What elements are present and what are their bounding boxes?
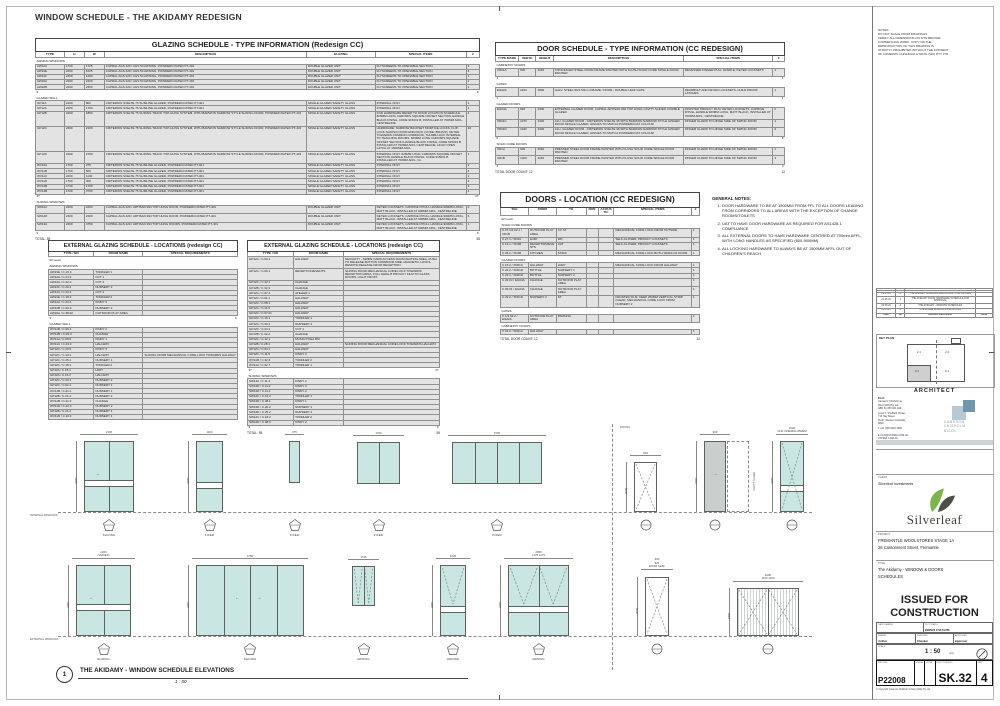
doors-section-divider (612, 548, 613, 670)
table-title: DOORS - LOCATION (CC REDESIGN) (501, 193, 700, 208)
door-elevation (780, 441, 804, 512)
view-title-underline (78, 678, 468, 679)
elevation-caption: FIXED (472, 533, 522, 537)
drawn-label: DRAWN (878, 635, 886, 637)
dimension-label: 1100 (192, 431, 227, 435)
elevation-caption: SLIDING (79, 657, 129, 661)
drawing-number-box: PROJ No. P22008 STAGE ZONE DISC / DWG No… (876, 660, 993, 686)
section-label: CABINETRY DOORS (501, 323, 700, 330)
window-tag-icon (98, 642, 110, 654)
table-row: C.07.1/2.02.1 / XD1BOUTDOOR PLAY AREACC … (501, 229, 700, 238)
awning-window-elevation (508, 565, 569, 636)
silverleaf-wordmark: Silverleaf (876, 512, 993, 528)
elevation-caption: FIXED (354, 533, 404, 537)
table-row: C.09.01 / EG04ACHANGEOUTDOOR PLAY AREA1 (501, 287, 700, 296)
scale-row: SCALE 1 : 50 (A1) (876, 644, 993, 660)
page-title: WINDOW SCHEDULE - THE AKIDAMY REDESIGN (35, 12, 242, 22)
scale-label: SCALE (878, 646, 885, 648)
cavity-pocket-outline (727, 441, 749, 512)
external-glazing-locations-right-table: EXTERNAL GLAZING SCHEDULE - LOCATIONS (r… (247, 240, 440, 435)
key-plan: KEY PLAN 2.1 2.3 2.2 2.4 (876, 334, 995, 388)
dimension-label: 2400 (186, 601, 190, 607)
zone-label: ZONE (926, 662, 932, 664)
view-title: THE AKIDAMY - WINDOW SCHEDULE ELEVATIONS (80, 667, 234, 674)
setout-baseline (58, 636, 812, 637)
view-number-badge: 1 (56, 666, 73, 683)
dwg-no-label: DISC / DWG No. (937, 662, 953, 664)
divider-line (876, 474, 993, 475)
plot-date-value: 29/05/24 4:52:51 PM (925, 629, 949, 632)
edge-tick (6, 352, 11, 353)
table-title: DOOR SCHEDULE - TYPE INFORMATION (CC RED… (496, 43, 785, 56)
proj-no-label: PROJ No. (878, 662, 888, 664)
checked-value: Checker (917, 639, 928, 643)
architect-firm: Cameron Chisholm & Nicol (WA) Pty Ltd AB… (878, 400, 940, 410)
door-elevation (634, 462, 657, 512)
table-row: GP12B24001850CRITERION SVELTE 75 SLIDING… (36, 111, 480, 126)
general-notes-title: GENERAL NOTES: (712, 196, 864, 201)
general-notes: GENERAL NOTES: DOOR HARDWARE TO BE AT 15… (712, 196, 864, 258)
door-tag-icon (786, 518, 798, 530)
approved-value: Approver (955, 639, 967, 643)
window-tag-icon (491, 518, 503, 530)
dimension-line (76, 441, 77, 512)
table-row: GP12D24002700CRITERION SVELTE 75 SLIDING… (36, 152, 480, 164)
key-plan-zone-label: 2.3 (945, 350, 949, 354)
dimension-label: 2400 (66, 601, 70, 607)
door-schedule-table: DOOR SCHEDULE - TYPE INFORMATION (CC RED… (495, 42, 785, 174)
client-label: CLIENT (878, 476, 887, 479)
scale-value: 1 : 50 (925, 649, 940, 655)
awning-window-elevation (440, 565, 466, 636)
window-tag-icon (289, 518, 301, 530)
copyright-note: © Copyright Cameron Chisholm & Nicol (WA… (876, 689, 993, 691)
sliding-window-elevation: → (84, 441, 134, 512)
dimension-label: 1025 (436, 555, 470, 559)
drawn-value: Author (878, 639, 887, 643)
table-row: XD01D10202400ALU. GLAZED DOOR - CRITERIO… (496, 128, 785, 137)
table-row: XD1B10002040PRESSED STEEL DOOR FRAME PAI… (496, 156, 785, 165)
sliding-window-elevation: → (76, 565, 131, 636)
drawn-row: DRAWN Author CHECKED Checker APPROVED Ap… (876, 633, 993, 644)
section-label: AWNING WINDOWS (36, 57, 480, 64)
fixed-window-elevation (452, 442, 542, 484)
key-plan-notch (951, 338, 961, 344)
architect-heading: ARCHITECT (876, 388, 993, 394)
dimension-label: 22001100 1100 (733, 574, 803, 582)
table-header: TAGFROMTOFIREACOUSTICSPECIAL ITEMS# (501, 207, 700, 216)
window-tag-icon (447, 642, 459, 654)
general-note-item: DOOR HARDWARE TO BE AT 1500MM FROM FFL T… (722, 203, 864, 218)
general-note-item: ALL EXTERNAL DOORS TO HAVE HARDWARE CENT… (722, 233, 864, 243)
cavity-slider-label: CAVITY SLIDER (753, 471, 756, 490)
project-label: PROJECT (878, 533, 890, 536)
dimension-line (696, 441, 697, 512)
fixed-window-elevation (196, 441, 223, 512)
dimension-label: 2200(VARIES) (72, 551, 135, 559)
window-tag-icon (204, 518, 216, 530)
edge-tick (499, 695, 500, 700)
table-row: C.20.2 / XD01DNURSERY 2STFROSTED FILM, K… (501, 295, 700, 307)
setout-baseline (58, 512, 812, 513)
title-label: TITLE (878, 562, 885, 565)
status-stamp: ISSUED FOR CONSTRUCTION (876, 594, 993, 619)
window-tag-icon (103, 518, 115, 530)
dimension-label: 2040 (635, 607, 639, 613)
dimension-line (772, 441, 773, 512)
dimension-line (68, 565, 69, 636)
internal-windows-label: INTERNAL WINDOWS (30, 514, 58, 517)
table-row: C.03.2 / XD01AHALLWAY1 (501, 329, 700, 334)
doors-location-table: DOORS - LOCATION (CC REDESIGN)TAGFROMTOF… (500, 192, 700, 341)
revision-header: DateNoRevision DescriptionIssue (877, 313, 993, 318)
door-tag-icon (709, 518, 721, 530)
dimension-line (637, 577, 638, 636)
dimension-label: 2040 (624, 488, 628, 494)
architect-address: Level 3, Sheffield House 713 Hay Street … (878, 412, 940, 425)
date-drawn-label: DATE DRAWN (878, 624, 892, 626)
dimension-label: 2400 (186, 477, 190, 483)
door-elevation (737, 588, 799, 636)
window-tag-icon (533, 642, 545, 654)
titleblock-divider (872, 6, 873, 700)
dimension-line (500, 565, 501, 636)
table-row: EG02A22001800GALV. STEEL SHS 50mm FRAME … (496, 88, 785, 97)
table-row: EG04A9202400EXTERNAL GLAZED DOOR, CAPRAL… (496, 107, 785, 119)
rev-label: REV (978, 662, 983, 664)
external-windows-label: EXTERNAL WINDOWS (30, 638, 58, 641)
dimension-label: 4750 (192, 555, 308, 559)
table-row: C.32.03 / EG04ACHANGEOUTDOOR PLAY AREA1 (501, 278, 700, 287)
dimension-line (188, 441, 189, 512)
dwg-no-value: SK.32 (939, 671, 972, 685)
table-row: SW12C24002200CAPRAL AGS 429 / ARTISAN 99… (36, 205, 480, 214)
table-row: GP12C24002100CRITERION SVELTE 75 SLIDING… (36, 126, 480, 151)
architect-contact: T +61 (0)8 9322 1566 E CCN@CCNWA.COM.AU … (878, 427, 940, 440)
awning-window-elevation (352, 566, 375, 606)
table-row: WV11D / C.22.4NURSERY 1 (49, 414, 238, 419)
divider-line (876, 449, 993, 450)
elevation-caption: SLIDING (84, 533, 134, 537)
dimension-label: 900 (630, 452, 661, 456)
proj-no-value: P22008 (878, 676, 906, 685)
plot-date-label: PLOT DATE: (925, 624, 938, 626)
dimension-label: 1725 (348, 556, 379, 560)
general-notes-list: DOOR HARDWARE TO BE AT 1500MM FROM FFL T… (712, 203, 864, 256)
window-tag-icon (373, 518, 385, 530)
key-plan-highlight-zone (907, 365, 931, 382)
door-elevation: → (704, 441, 726, 512)
table-total: TOTAL: 5555 (247, 431, 440, 435)
table-title: GLAZING SCHEDULE - TYPE INFORMATION (Red… (36, 39, 480, 52)
architect-details: Perth Cameron Chisholm & Nicol (WA) Pty … (878, 397, 940, 440)
dimension-line (188, 565, 189, 636)
dimension-label: 2400 (770, 477, 774, 483)
elevation-caption: AWNING (514, 657, 564, 661)
stage-label: STAGE (916, 662, 923, 664)
fixed-window-elevation (357, 442, 400, 484)
checked-label: CHECKED (917, 635, 928, 637)
project-name: FREMANTLE WOOLSTORES STAGE 1A (878, 538, 990, 544)
dimension-label: 2400 (430, 601, 434, 607)
view-scale: 1 : 50 (175, 679, 187, 684)
approved-label: APPROVED (955, 635, 967, 637)
doors-label: DOORS (620, 426, 630, 429)
key-plan-zone-label: 2.4 (945, 369, 949, 373)
dimension-line (432, 565, 433, 636)
table-row: GP12C / C.03.1HALLWAYSECURITY - SWIPE CA… (248, 257, 440, 269)
table-row: XD01C10702400ALU. GLAZED DOOR - CRITERIO… (496, 119, 785, 128)
dimension-label: 2400 (498, 601, 502, 607)
dimension-label: 920 (700, 431, 730, 435)
date-row: DATE DRAWN PLOT DATE: 29/05/24 4:52:51 P… (876, 622, 993, 633)
glazing-schedule-table: GLAZING SCHEDULE - TYPE INFORMATION (Red… (35, 38, 480, 241)
table-title: EXTERNAL GLAZING SCHEDULE - LOCATIONS (r… (49, 241, 238, 252)
table-row: GP12C / C.06.1RECEPTION/EVENTSSLIDING DO… (248, 269, 440, 281)
subtotal-row: 99 (36, 231, 480, 236)
divider-bar (876, 440, 993, 445)
door-tag-icon (762, 642, 774, 654)
fixed-window-elevation (289, 441, 300, 483)
door-elevation (645, 577, 669, 636)
dimension-label: 2400 (74, 477, 78, 483)
sliding-window-elevation: ←→ (196, 565, 304, 636)
divider-line (876, 560, 993, 561)
window-tag-icon (244, 642, 256, 654)
table-row: SW14A24004750CAPRAL AGS 429 / ARTISAN 99… (36, 222, 480, 231)
revision-table: 29.05.244THE AKIDAMY WINDOWS AND DOORS -… (876, 288, 993, 318)
sheet-title-line2: SCHEDULES (878, 574, 990, 580)
table-row: SW12D24002400CAPRAL AGS 429 / ARTISAN 99… (36, 214, 480, 223)
dimension-label: 1020CLR OPENING 850MM (776, 427, 808, 435)
section-label: CABINETRY DOORS (496, 61, 785, 68)
dimension-label: 3700 (448, 432, 546, 436)
general-note-item: ALL LOCKING HARDWARE TO ALWAYS BE AT 150… (722, 246, 864, 256)
door-tag-icon (651, 642, 663, 654)
elevation-caption: FIXED (270, 533, 320, 537)
dimension-label: 1700 (353, 432, 404, 436)
table-total: TOTAL DOOR COUNT: 1212 (495, 170, 785, 174)
edge-tick (499, 6, 500, 11)
door-tag-icon (640, 518, 652, 530)
window-tag-icon (358, 642, 370, 654)
subtotal-row: 99 (248, 425, 440, 430)
elevation-caption: AWNING (339, 657, 389, 661)
section-label: GATES (501, 307, 700, 314)
doors-section-divider (612, 424, 613, 545)
elevation-caption: FIXED (185, 533, 235, 537)
dimension-label: 23501175 1175 (504, 551, 573, 559)
dimension-label: 375 (285, 431, 304, 435)
key-plan-zone-label: 2.2 (915, 369, 919, 373)
scale-suffix: (A1) (949, 652, 954, 655)
table-title: EXTERNAL GLAZING SCHEDULE - LOCATIONS (r… (248, 241, 440, 252)
table-row: C.13.1 / XD1BRECEPTION/EVENTSUATSELF-CLO… (501, 242, 700, 251)
dimension-label: 1800 (727, 613, 731, 619)
rev-value: 4 (981, 671, 988, 685)
subtotal-row: 44 (496, 164, 785, 169)
dimension-label: 2400 (694, 477, 698, 483)
table-total: TOTAL DOOR COUNT: 1212 (500, 337, 700, 341)
drawing-sheet: WINDOW SCHEDULE - THE AKIDAMY REDESIGN G… (0, 0, 1000, 706)
ccn-logo-text: CAMERON CHISHOLM NICOL (944, 420, 966, 433)
dimension-label: 2100 (80, 431, 138, 435)
divider-line (876, 531, 993, 532)
key-plan-zone-divider (936, 340, 937, 384)
key-plan-zone-label: 2.1 (917, 350, 921, 354)
table-row: XD01A9002040CONCEALED STEEL DOOR FRAME P… (496, 68, 785, 77)
sheet-title-line1: The Akidamy - WINDOW & DOORS (878, 567, 990, 573)
project-address: 28 Cantonment Street, Fremantle (878, 545, 990, 551)
general-note-item: UAT TO HAVE DOOR HARDWARE AS REQUIRED FO… (722, 221, 864, 231)
elevation-caption: AWNING (428, 657, 478, 661)
revision-row: 21.05.243THE AKIDAMY DOOR HARDWARE SCHED… (877, 297, 993, 304)
external-glazing-locations-left-table: EXTERNAL GLAZING SCHEDULE - LOCATIONS (r… (48, 240, 238, 420)
client-name: Silverleaf Investments (878, 482, 913, 486)
section-label: GLAZED DOORS (501, 256, 700, 263)
sheet-notes: NOTES: DO NOT SCALE FROM DRAWINGS. VERIF… (878, 28, 990, 56)
key-plan-label: KEY PLAN (879, 336, 894, 340)
table-row: XD1A9002040PRESSED STEEL DOOR FRAME PAIN… (496, 147, 785, 156)
table-row: C.1/2.04.2 / EG02AOUTDOOR PLAY AREAPARKI… (501, 314, 700, 323)
dimension-label: 900920DOOR LEAF (641, 558, 673, 569)
elevation-caption: SLIDING (225, 657, 275, 661)
